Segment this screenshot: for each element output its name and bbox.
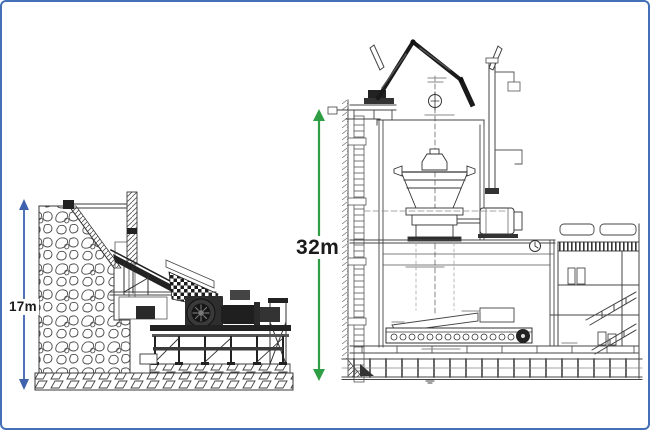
- height-label-32m: 32m: [294, 236, 341, 259]
- grizzly-feeder: [113, 254, 174, 293]
- main-deck: [350, 240, 555, 243]
- left-crusher-station-drawing: [35, 192, 293, 390]
- rock-wall-hatch: [342, 100, 348, 359]
- dividing-wall: [550, 240, 554, 346]
- drive-top-box: [230, 290, 250, 300]
- dimension-row-lines: [350, 346, 638, 353]
- right-column-base: [485, 188, 499, 194]
- overhang-box: [328, 107, 337, 114]
- anchor-block: [63, 200, 74, 209]
- cabinets: [568, 268, 616, 345]
- feeder-chord: [111, 250, 170, 281]
- right-column-cap: [486, 58, 498, 63]
- drive-ring: [254, 302, 260, 326]
- boom-joint-top: [410, 39, 415, 44]
- stairs: [586, 292, 636, 354]
- stone-retaining-wall: [39, 206, 130, 373]
- main-beam: [150, 325, 291, 331]
- tower-platform: [268, 298, 288, 303]
- rock-breaker-boom: [378, 42, 472, 104]
- drive-unit: [221, 305, 257, 324]
- arrow-head-bottom: [313, 369, 325, 381]
- feed-wall-band: [127, 228, 137, 234]
- column-bracket: [495, 72, 514, 82]
- duct: [495, 150, 522, 164]
- hanging-box: [508, 82, 520, 91]
- motor-base: [478, 234, 518, 238]
- discharge-hood: [480, 308, 514, 322]
- flywheel-hub: [198, 310, 204, 316]
- pulley-hub: [521, 334, 525, 338]
- slide-frame: 17m 32m: [0, 0, 650, 430]
- ladder-shaft: [354, 116, 364, 382]
- left-mast: [370, 45, 384, 70]
- motor-shaft: [457, 219, 480, 223]
- tank-left: [560, 224, 594, 235]
- motor: [480, 208, 514, 234]
- tank-right: [600, 224, 636, 235]
- bin-top-line: [377, 120, 484, 125]
- tie-lines: [69, 204, 127, 208]
- room-equipment: [136, 306, 155, 319]
- secondary-beam: [152, 334, 289, 337]
- ground-mark: [426, 381, 434, 383]
- boom-joint-mid: [458, 77, 463, 82]
- motor-end: [514, 212, 522, 230]
- surge-bin-lines: [383, 254, 553, 265]
- arrow-head-top: [19, 199, 29, 210]
- gyratory-crusher: [394, 149, 475, 241]
- ground-box: [140, 354, 157, 364]
- right-column: [489, 64, 495, 192]
- arrow-head-bottom: [19, 379, 29, 390]
- upper-foundation-strip: [150, 364, 290, 373]
- pedestal-deck: [346, 105, 396, 119]
- height-label-17m: 17m: [7, 299, 39, 315]
- dimension-arrow-17m: [19, 199, 29, 390]
- right-crusher-station-drawing: [328, 39, 642, 383]
- low-beam: [153, 347, 283, 351]
- comparison-diagram: [2, 2, 648, 428]
- foundation-strip: [35, 373, 293, 390]
- grating-beam: [558, 242, 639, 251]
- arrow-head-top: [313, 109, 325, 121]
- tunnel-bottom: [342, 377, 642, 380]
